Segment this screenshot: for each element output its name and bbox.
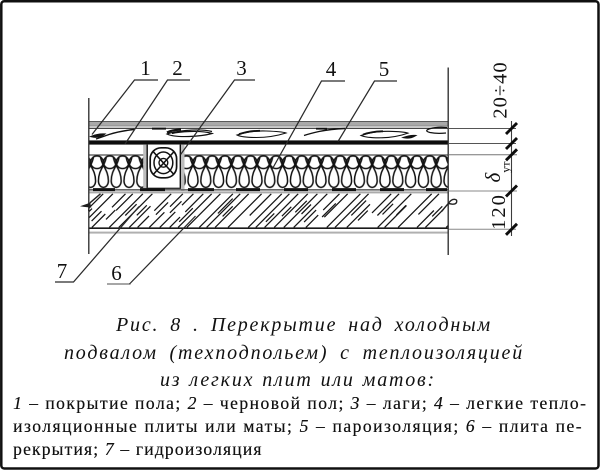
svg-text:20÷40: 20÷40 (490, 61, 512, 118)
svg-text:1: 1 (140, 56, 151, 80)
svg-text:δут: δут (481, 161, 513, 183)
svg-text:2: 2 (172, 56, 183, 80)
svg-text:6: 6 (111, 261, 122, 285)
svg-text:120: 120 (488, 193, 510, 230)
svg-text:7: 7 (57, 259, 68, 283)
svg-text:5: 5 (379, 57, 390, 81)
svg-text:4: 4 (326, 57, 337, 81)
svg-text:3: 3 (236, 56, 247, 80)
